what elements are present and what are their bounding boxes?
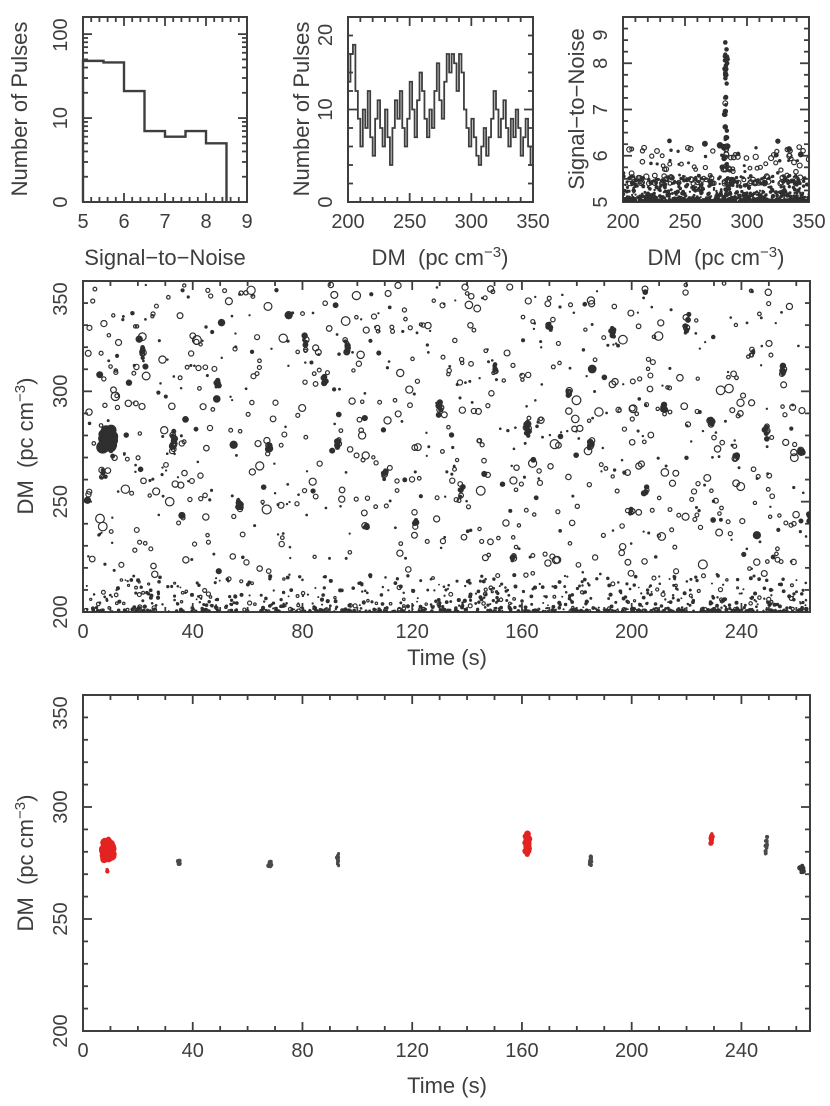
time-dm-xlabel: Time (s) <box>407 647 487 669</box>
y-tick-label: 200 <box>50 595 72 628</box>
superscript: −3 <box>484 244 501 261</box>
x-tick-label: 80 <box>291 621 313 643</box>
x-tick-label: 250 <box>393 211 426 233</box>
y-tick-label: 20 <box>315 24 337 46</box>
histogram-steps <box>348 45 533 202</box>
x-tick-label: 200 <box>615 621 648 643</box>
y-tick-label: 6 <box>590 150 612 161</box>
y-tick-label: 300 <box>50 375 72 408</box>
dm-hist-xlabel: DM (pc cm−3) <box>372 247 509 269</box>
y-tick-label: 350 <box>50 696 72 729</box>
y-tick-label: 10 <box>50 107 72 129</box>
x-tick-label: 40 <box>182 1040 204 1062</box>
x-tick-label: 120 <box>396 1040 429 1062</box>
x-tick-label: 6 <box>118 211 129 233</box>
superscript: −3 <box>12 385 29 402</box>
x-tick-label: 300 <box>730 211 763 233</box>
x-tick-label: 250 <box>668 211 701 233</box>
y-tick-label: 8 <box>590 58 612 69</box>
data-points <box>99 831 806 875</box>
candidates-ylabel: DM (pc cm−3) <box>15 795 37 932</box>
x-tick-label: 240 <box>725 621 758 643</box>
single-pulse-search-figure: 5678901010020025030035001020200250300350… <box>0 0 830 1106</box>
x-tick-label: 120 <box>396 621 429 643</box>
time-dm-ylabel: DM (pc cm−3) <box>15 378 37 515</box>
snr-hist-ylabel: Number of Pulses <box>9 22 31 197</box>
x-tick-label: 0 <box>77 621 88 643</box>
x-tick-label: 80 <box>291 1040 313 1062</box>
x-tick-label: 40 <box>182 621 204 643</box>
y-tick-label: 350 <box>50 282 72 315</box>
x-tick-label: 200 <box>606 211 639 233</box>
panel-border <box>83 281 810 612</box>
y-tick-label: 7 <box>590 104 612 115</box>
y-tick-label: 0 <box>50 196 72 207</box>
x-tick-label: 160 <box>505 1040 538 1062</box>
x-tick-label: 9 <box>241 211 252 233</box>
x-tick-label: 350 <box>516 211 549 233</box>
dm-hist-ylabel: Number of Pulses <box>291 22 313 197</box>
x-tick-label: 0 <box>77 1040 88 1062</box>
x-tick-label: 160 <box>505 621 538 643</box>
histogram-steps <box>83 61 227 202</box>
x-tick-label: 300 <box>455 211 488 233</box>
x-tick-label: 5 <box>77 211 88 233</box>
x-tick-label: 8 <box>200 211 211 233</box>
y-tick-label: 250 <box>50 485 72 518</box>
superscript: −3 <box>760 244 777 261</box>
panel-border <box>83 695 810 1031</box>
panel-border <box>83 17 247 202</box>
x-tick-label: 7 <box>159 211 170 233</box>
y-tick-label: 200 <box>50 1014 72 1047</box>
x-tick-label: 200 <box>331 211 364 233</box>
dm-snr-ylabel: Signal−to−Noise <box>566 28 588 189</box>
y-tick-label: 250 <box>50 902 72 935</box>
data-points <box>84 282 814 614</box>
y-tick-label: 0 <box>315 196 337 207</box>
y-tick-label: 100 <box>50 18 72 51</box>
dm-snr-xlabel: DM (pc cm−3) <box>648 247 785 269</box>
superscript: −3 <box>12 802 29 819</box>
candidates-xlabel: Time (s) <box>407 1075 487 1097</box>
x-tick-label: 200 <box>615 1040 648 1062</box>
y-tick-label: 10 <box>315 98 337 120</box>
snr-hist-xlabel: Signal−to−Noise <box>84 247 245 269</box>
y-tick-label: 5 <box>590 196 612 207</box>
data-points <box>622 40 812 203</box>
x-tick-label: 240 <box>725 1040 758 1062</box>
panel-border <box>623 17 809 202</box>
y-tick-label: 300 <box>50 790 72 823</box>
x-tick-label: 350 <box>792 211 825 233</box>
y-tick-label: 9 <box>590 29 612 40</box>
figure-plot-canvas: 5678901010020025030035001020200250300350… <box>0 0 830 1106</box>
